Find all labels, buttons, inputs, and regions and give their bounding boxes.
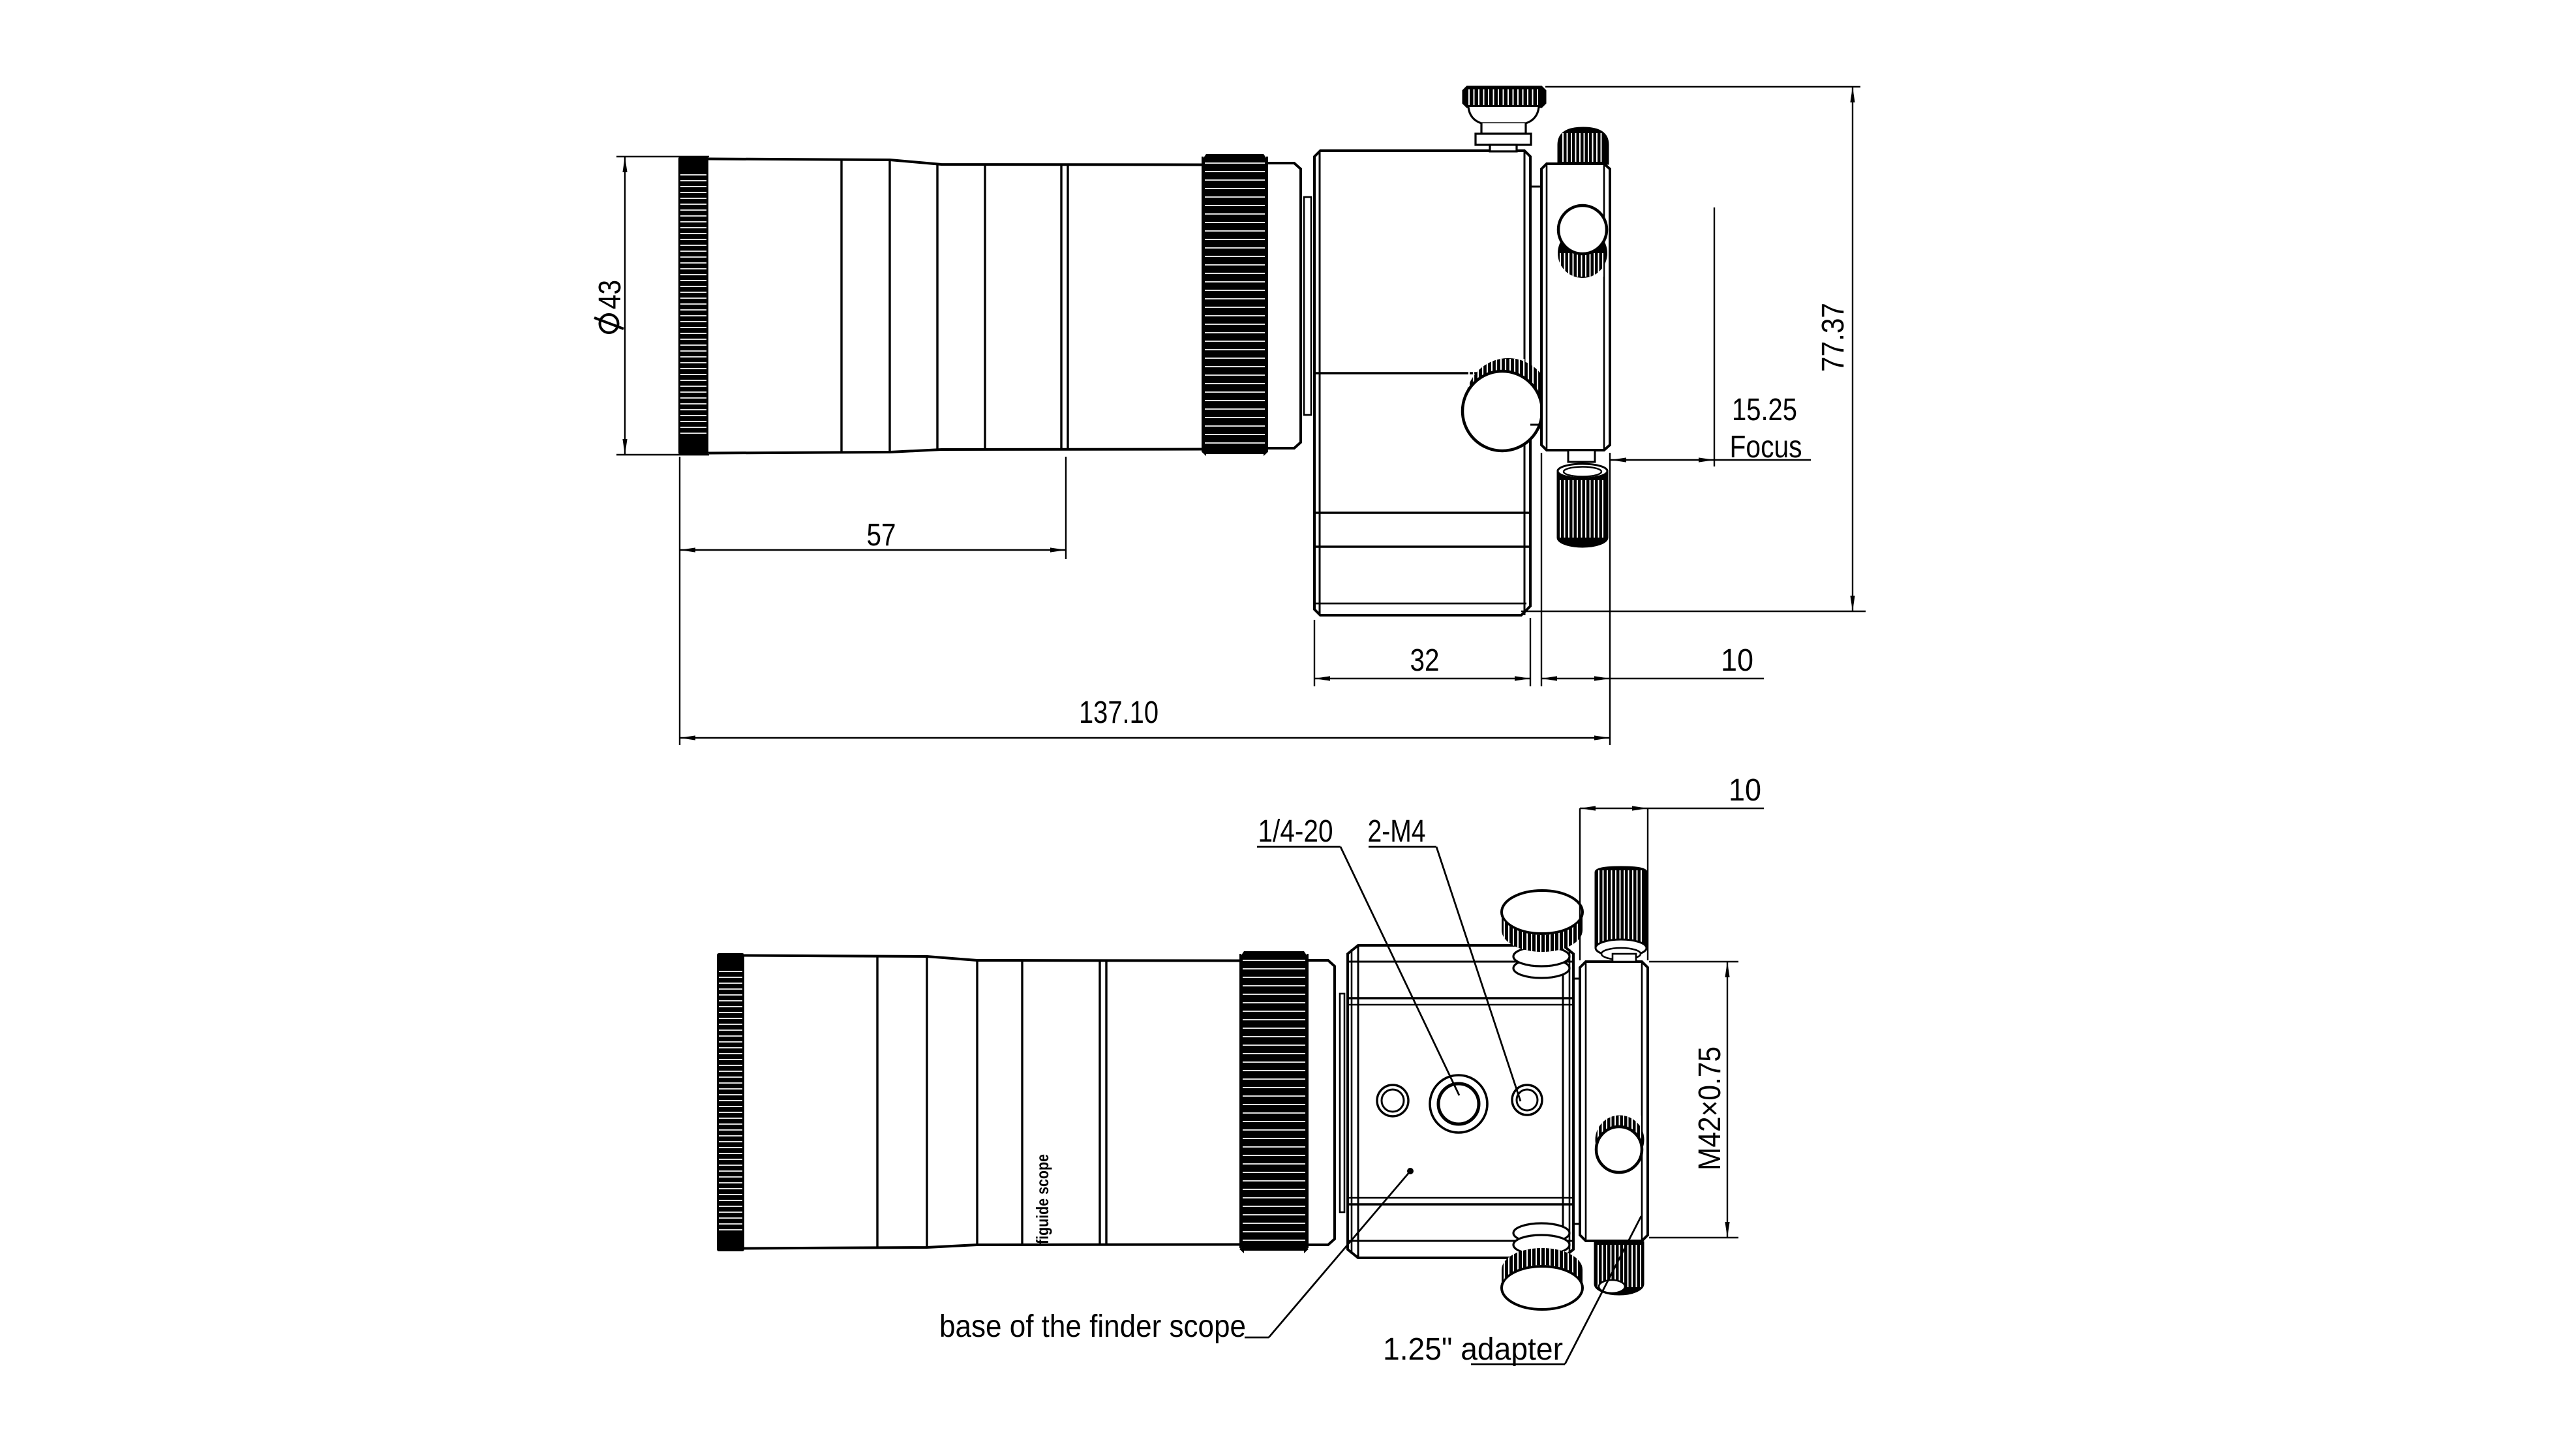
svg-text:32: 32 xyxy=(1410,643,1440,678)
svg-text:1.25" adapter: 1.25" adapter xyxy=(1383,1332,1563,1367)
svg-text:base of the finder scope: base of the finder scope xyxy=(939,1309,1246,1344)
svg-text:43: 43 xyxy=(593,280,628,309)
svg-text:77.37: 77.37 xyxy=(1816,303,1851,372)
svg-text:57: 57 xyxy=(867,518,896,553)
svg-text:137.10: 137.10 xyxy=(1079,695,1159,730)
svg-text:Focus: Focus xyxy=(1730,430,1802,465)
svg-text:15.25: 15.25 xyxy=(1732,393,1797,427)
svg-text:M42×0.75: M42×0.75 xyxy=(1693,1046,1727,1170)
svg-text:2-M4: 2-M4 xyxy=(1368,814,1426,849)
svg-text:1/4-20: 1/4-20 xyxy=(1258,814,1333,849)
svg-text:figuide scope: figuide scope xyxy=(1033,1154,1052,1244)
svg-text:10: 10 xyxy=(1729,773,1761,808)
svg-text:10: 10 xyxy=(1721,643,1753,678)
